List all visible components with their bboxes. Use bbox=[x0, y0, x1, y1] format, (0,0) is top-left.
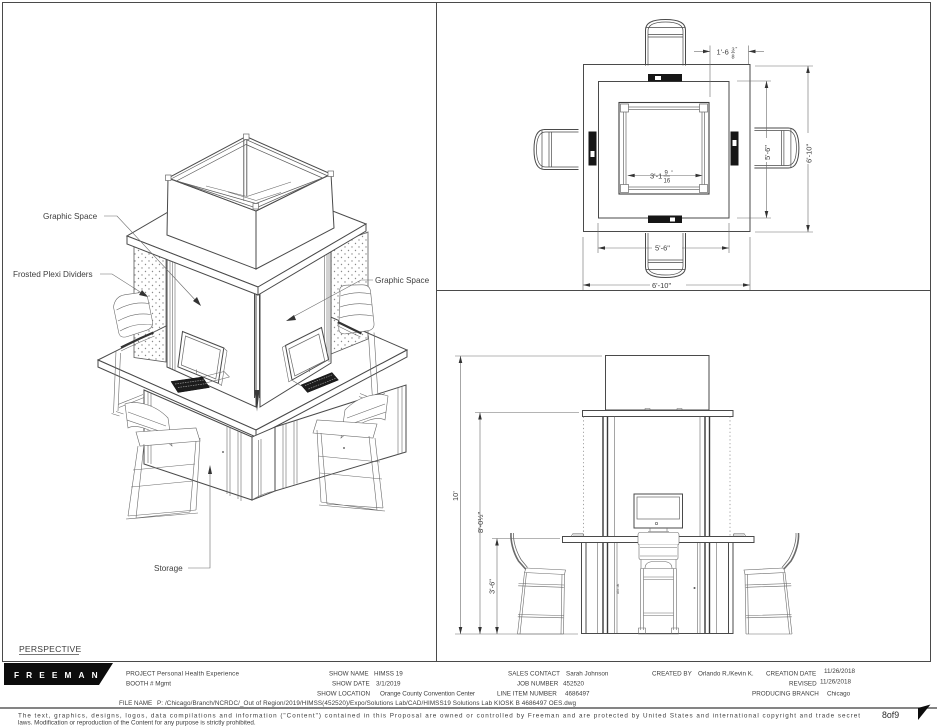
svg-text:Orlando R./Kevin K.: Orlando R./Kevin K. bbox=[698, 671, 754, 678]
svg-text:11/26/2018: 11/26/2018 bbox=[824, 668, 856, 675]
svg-text:abc ds: abc ds bbox=[616, 583, 620, 594]
svg-text:452520: 452520 bbox=[563, 681, 585, 688]
svg-text:CREATION DATE: CREATION DATE bbox=[766, 671, 816, 678]
svg-text:SHOW DATE: SHOW DATE bbox=[332, 681, 370, 688]
svg-text:3'-1: 3'-1 bbox=[650, 172, 662, 181]
svg-text:The text, graphics, designs, l: The text, graphics, designs, logos, data… bbox=[18, 713, 860, 720]
svg-text:Graphic Space: Graphic Space bbox=[43, 212, 98, 221]
svg-text:SHOW NAME: SHOW NAME bbox=[329, 671, 369, 678]
svg-text:Frosted Plexi Dividers: Frosted Plexi Dividers bbox=[13, 270, 93, 279]
svg-text:REVISED: REVISED bbox=[789, 681, 817, 688]
svg-text:Storage: Storage bbox=[154, 564, 183, 573]
svg-text:FILE NAME: FILE NAME bbox=[119, 700, 152, 707]
svg-text:FREEMAN: FREEMAN bbox=[14, 670, 105, 680]
svg-text:3/1/2019: 3/1/2019 bbox=[376, 681, 401, 688]
svg-text:PRODUCING BRANCH: PRODUCING BRANCH bbox=[752, 691, 819, 698]
svg-text:LINE ITEM NUMBER: LINE ITEM NUMBER bbox=[497, 691, 557, 698]
svg-text:5'-6": 5'-6" bbox=[655, 244, 670, 253]
svg-text:SHOW LOCATION: SHOW LOCATION bbox=[317, 691, 371, 698]
svg-text:Sarah Johnson: Sarah Johnson bbox=[566, 671, 609, 678]
svg-text:": " bbox=[736, 47, 738, 53]
svg-text:11/26/2018: 11/26/2018 bbox=[820, 679, 852, 686]
svg-text:Chicago: Chicago bbox=[827, 691, 851, 698]
svg-text:laws. Modification or reproduc: laws. Modification or reproduction of th… bbox=[18, 720, 256, 727]
svg-text:10': 10' bbox=[451, 491, 460, 501]
svg-text:6'-10": 6'-10" bbox=[652, 281, 671, 290]
svg-text:1'-6: 1'-6 bbox=[717, 48, 729, 57]
svg-text:Graphic Space: Graphic Space bbox=[375, 276, 430, 285]
svg-text:8of9: 8of9 bbox=[882, 710, 899, 720]
svg-text:4686497: 4686497 bbox=[565, 691, 590, 698]
svg-text:": " bbox=[671, 171, 673, 177]
svg-text:HIMSS 19: HIMSS 19 bbox=[374, 671, 403, 678]
svg-text:3'-6": 3'-6" bbox=[488, 579, 497, 594]
svg-text:# Mgmt: # Mgmt bbox=[150, 681, 171, 688]
svg-text:CREATED BY: CREATED BY bbox=[652, 671, 693, 678]
svg-text:JOB NUMBER: JOB NUMBER bbox=[517, 681, 559, 688]
svg-text:6'-10": 6'-10" bbox=[804, 144, 813, 163]
svg-text:P: /Chicago/Branch/NCRDC/_Out: P: /Chicago/Branch/NCRDC/_Out of Region/… bbox=[157, 700, 576, 707]
svg-text:SALES CONTACT: SALES CONTACT bbox=[508, 671, 560, 678]
svg-text:PROJECT: PROJECT bbox=[126, 671, 156, 678]
svg-text:8'-0½": 8'-0½" bbox=[476, 511, 485, 533]
svg-text:Orange County Convention Cente: Orange County Convention Center bbox=[380, 691, 475, 698]
svg-text:8: 8 bbox=[732, 55, 735, 61]
svg-text:5'-6": 5'-6" bbox=[763, 145, 772, 160]
svg-text:PERSPECTIVE: PERSPECTIVE bbox=[19, 644, 81, 654]
svg-text:BOOTH: BOOTH bbox=[126, 681, 149, 688]
svg-text:16: 16 bbox=[664, 179, 671, 185]
svg-text:Personal Health Experience: Personal Health Experience bbox=[157, 671, 239, 678]
